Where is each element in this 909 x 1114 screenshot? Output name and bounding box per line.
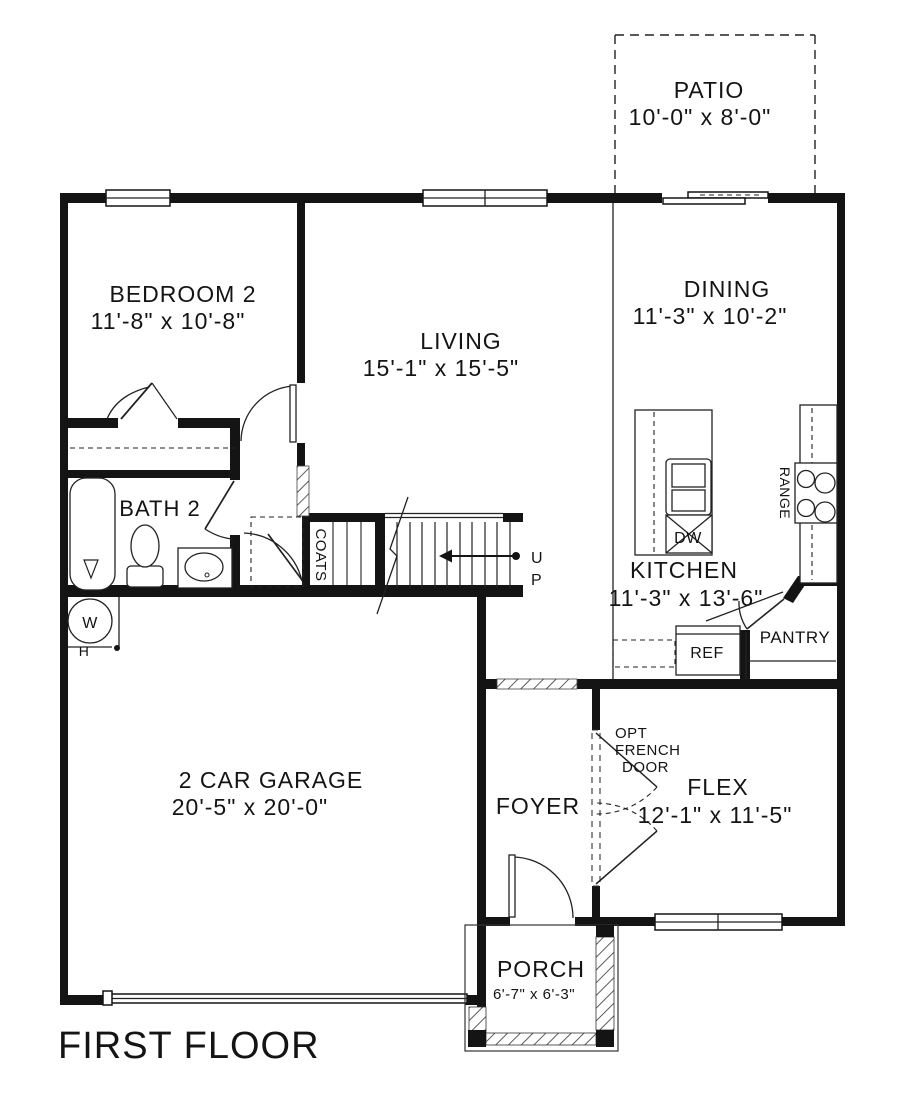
kitchen-dims: 11'-3" x 13'-6" [609,585,764,611]
dining-dims: 11'-3" x 10'-2" [633,303,788,329]
bath2-label: BATH 2 [119,496,200,521]
water-heater-sublabel: H [79,643,90,659]
stairs-up-label-p: P [531,572,542,589]
bedroom2-label: BEDROOM 2 [109,281,256,307]
bathtub [70,478,115,590]
living-window [423,190,547,206]
porch-dims: 6'-7" x 6'-3" [493,986,575,1003]
garage-dims: 20'-5" x 20'-0" [172,794,328,820]
svg-text:FRENCH: FRENCH [615,742,681,759]
refrigerator: REF [676,626,740,675]
stairs-up-label-u: U [531,550,543,567]
floor-plan-drawing: U P [0,0,909,1114]
water-heater-label: W [82,615,98,632]
flex-label: FLEX [687,774,749,800]
dining-label: DINING [684,276,771,302]
garage-label: 2 CAR GARAGE [179,767,364,793]
kitchen-island: DW [635,410,712,555]
patio-label: PATIO [674,77,745,103]
dining-sliding-door [662,190,768,206]
porch-label: PORCH [497,956,585,982]
dishwasher-label: DW [674,530,702,547]
floor-plan-sheet: U P [0,0,909,1114]
bath-sink [178,548,232,588]
range: RANGE [777,463,837,523]
svg-text:OPT: OPT [615,725,647,742]
living-dims: 15'-1" x 15'-5" [363,355,519,381]
refrigerator-label: REF [690,645,724,662]
foyer-label: FOYER [496,793,580,819]
svg-text:DOOR: DOOR [622,759,669,776]
pantry-label: PANTRY [760,628,830,647]
flex-window [655,914,782,930]
range-label: RANGE [777,467,793,519]
kitchen-label: KITCHEN [630,557,738,583]
coats-label: COATS [312,528,329,581]
flex-dims: 12'-1" x 11'-5" [638,802,793,828]
bedroom-window [106,190,170,206]
sheet-title: FIRST FLOOR [58,1025,320,1067]
living-label: LIVING [420,328,501,354]
patio-dims: 10'-0" x 8'-0" [629,104,772,130]
dishwasher: DW [666,515,712,553]
bedroom2-dims: 11'-8" x 10'-8" [91,308,246,334]
